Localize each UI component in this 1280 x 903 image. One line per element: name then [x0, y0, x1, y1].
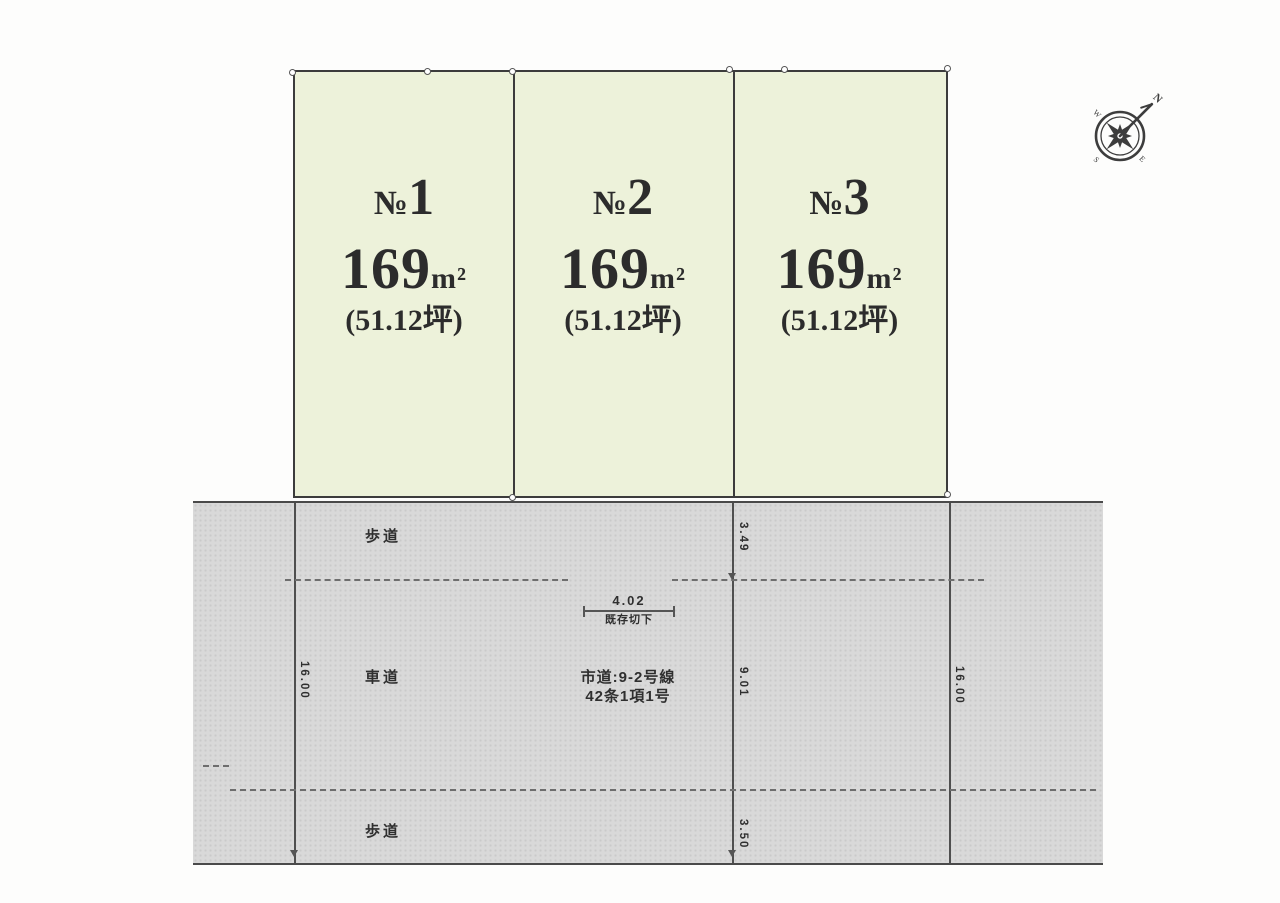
- survey-point: [509, 494, 516, 501]
- survey-point: [944, 65, 951, 72]
- lot-no1-prefix: №: [374, 187, 408, 221]
- survey-point: [726, 66, 733, 73]
- sidewalk-top-label: 歩道: [348, 529, 418, 544]
- lot-no1-area-value: 169: [341, 236, 431, 301]
- compass-west-label: W: [1091, 108, 1103, 120]
- dim-road-total-right: 16.00: [953, 666, 965, 705]
- lot-no3-number: №3: [809, 172, 869, 224]
- lot-no3-area-unit: m²: [867, 262, 903, 295]
- road-name-line2: 42条1項1号: [540, 687, 716, 706]
- survey-point: [424, 68, 431, 75]
- dim-sidewalk-bottom: 3.50: [737, 819, 749, 849]
- curb-cut-label: 既存切下: [583, 615, 675, 626]
- lot-no3-area-value: 169: [777, 236, 867, 301]
- dim-road-total-left: 16.00: [298, 661, 310, 700]
- survey-point: [289, 69, 296, 76]
- lot-no3-prefix: №: [809, 187, 843, 221]
- sidewalk-bottom-label: 歩道: [348, 824, 418, 839]
- curb-cut-dimension: 4.02 既存切下: [583, 594, 675, 626]
- dimension-arrow: [728, 850, 736, 857]
- lot-no1: №1 169m² (51.12坪): [295, 72, 513, 496]
- lot-no3-area: 169m²: [777, 240, 903, 298]
- lot-no1-number: №1: [374, 172, 434, 224]
- lot-no2: №2 169m² (51.12坪): [513, 72, 733, 496]
- road-survey-line-left: [294, 503, 296, 863]
- lot-boundary-1-2: [513, 72, 515, 496]
- dashed-line-stub: [203, 765, 229, 767]
- survey-point: [944, 491, 951, 498]
- lot-no3-tsubo: (51.12坪): [781, 304, 898, 337]
- compass-east-label: E: [1137, 154, 1147, 164]
- lot-no1-tsubo: (51.12坪): [345, 304, 462, 337]
- compass-south-label: S: [1092, 155, 1102, 165]
- lot-no2-digit: 2: [627, 172, 653, 224]
- survey-point: [781, 66, 788, 73]
- sidewalk-top-dashed-line: [285, 579, 568, 581]
- road-survey-line-right: [949, 503, 951, 863]
- curb-cut-dimension-line: [583, 610, 675, 612]
- road-survey-line-mid: [732, 503, 734, 863]
- lot-no2-area-unit: m²: [650, 262, 686, 295]
- compass-icon: N E S W: [1078, 78, 1178, 178]
- sidewalk-top-dashed-line: [672, 579, 984, 581]
- curb-cut-width: 4.02: [583, 594, 675, 607]
- road-name-line1: 市道:9-2号線: [540, 668, 716, 687]
- dim-sidewalk-top: 3.49: [737, 522, 749, 552]
- lot-no1-digit: 1: [408, 172, 434, 224]
- lot-no1-area-unit: m²: [431, 262, 467, 295]
- lot-no2-area-value: 169: [560, 236, 650, 301]
- road-name: 市道:9-2号線 42条1項1号: [540, 668, 716, 706]
- lot-no3-digit: 3: [844, 172, 870, 224]
- roadway-label: 車道: [348, 670, 418, 685]
- lots-block: №1 169m² (51.12坪) №2 169m² (51.12坪) №3 1…: [293, 70, 948, 498]
- survey-point: [509, 68, 516, 75]
- lot-plan-canvas: №1 169m² (51.12坪) №2 169m² (51.12坪) №3 1…: [0, 0, 1280, 903]
- road-block: 歩道 車道 歩道 市道:9-2号線 42条1項1号 4.02 既存切下 3.49…: [193, 501, 1103, 865]
- lot-no1-area: 169m²: [341, 240, 467, 298]
- dimension-arrow: [290, 850, 298, 857]
- lot-no2-prefix: №: [593, 187, 627, 221]
- lot-no3: №3 169m² (51.12坪): [733, 72, 946, 496]
- lot-boundary-2-3: [733, 72, 735, 496]
- dim-roadway: 9.01: [737, 667, 749, 697]
- lot-no2-area: 169m²: [560, 240, 686, 298]
- dimension-arrow: [728, 573, 736, 580]
- sidewalk-bottom-dashed-line: [230, 789, 1096, 791]
- lot-no2-tsubo: (51.12坪): [564, 304, 681, 337]
- lot-no2-number: №2: [593, 172, 653, 224]
